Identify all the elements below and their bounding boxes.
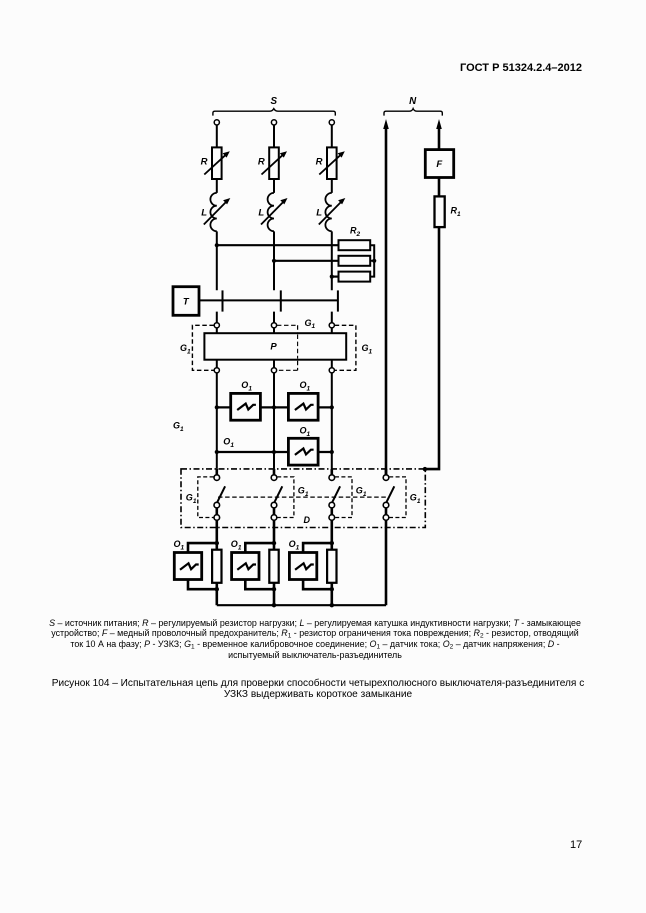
svg-text:R2: R2 bbox=[350, 226, 361, 238]
svg-text:ГОСТ Р 51324.2.4–2012: ГОСТ Р 51324.2.4–2012 bbox=[460, 62, 582, 74]
svg-text:O1: O1 bbox=[241, 380, 252, 392]
svg-text:N: N bbox=[409, 96, 417, 107]
svg-text:F: F bbox=[436, 159, 442, 170]
svg-text:L: L bbox=[316, 208, 322, 219]
svg-text:O1: O1 bbox=[231, 539, 242, 551]
svg-text:L: L bbox=[201, 208, 207, 219]
svg-text:O1: O1 bbox=[300, 380, 311, 392]
svg-text:R: R bbox=[316, 157, 323, 168]
svg-text:S: S bbox=[271, 96, 278, 107]
svg-text:L: L bbox=[258, 208, 264, 219]
svg-text:G1: G1 bbox=[356, 486, 367, 498]
svg-text:O1: O1 bbox=[174, 539, 185, 551]
svg-text:G1: G1 bbox=[305, 318, 316, 330]
svg-text:D: D bbox=[304, 515, 311, 525]
svg-text:O1: O1 bbox=[223, 437, 234, 449]
svg-text:R: R bbox=[258, 157, 265, 168]
svg-text:R1: R1 bbox=[451, 206, 462, 218]
svg-text:G1: G1 bbox=[410, 493, 421, 505]
svg-text:G1: G1 bbox=[298, 486, 309, 498]
svg-text:O1: O1 bbox=[289, 539, 300, 551]
svg-text:G1: G1 bbox=[186, 493, 197, 505]
svg-text:G1: G1 bbox=[362, 343, 373, 355]
svg-text:G1: G1 bbox=[180, 343, 191, 355]
svg-text:P: P bbox=[270, 342, 277, 353]
svg-text:R: R bbox=[201, 157, 208, 168]
svg-text:G1: G1 bbox=[173, 421, 184, 433]
svg-text:O1: O1 bbox=[300, 426, 311, 438]
